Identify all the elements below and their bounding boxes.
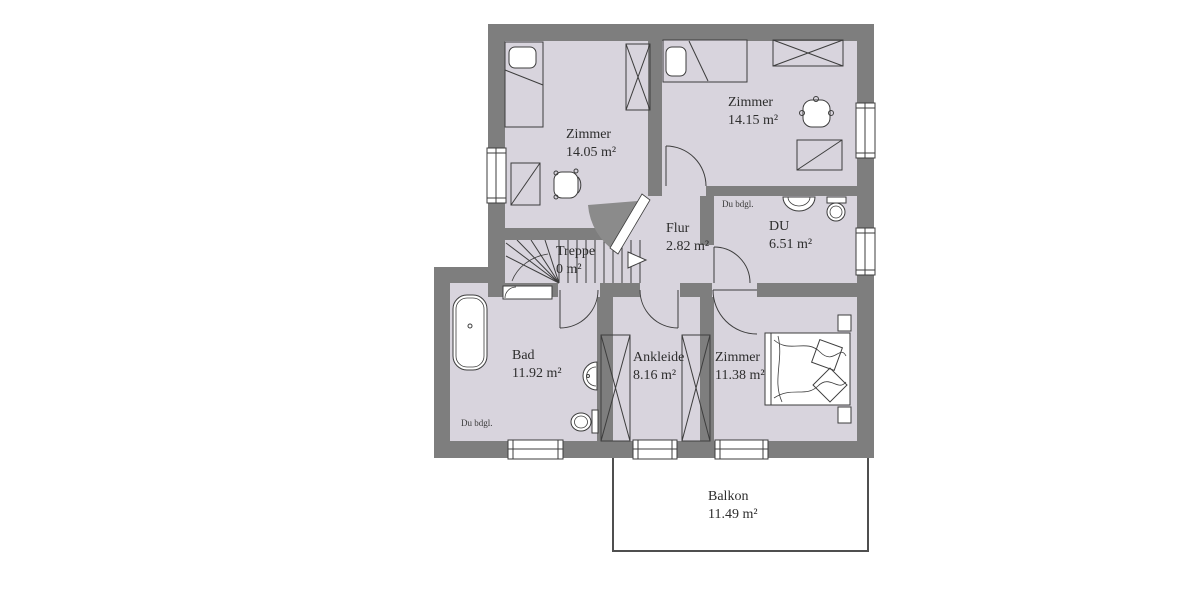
room-name: DU [769,218,812,236]
room-area: 0 m² [556,261,595,279]
bed-single-tl [505,42,543,127]
label-flur: Flur 2.82 m² [666,220,709,256]
wall-under-tl-room [488,228,612,240]
wall-top [488,24,874,41]
label-du: DU 6.51 m² [769,218,812,254]
wall-mid-2 [600,283,640,297]
room-area: 11.38 m² [715,367,765,385]
room-area: 6.51 m² [769,236,812,254]
room-name: Zimmer [728,94,778,112]
wall-under-tr-room-right [706,186,857,196]
window-right-zimmer-tr [856,103,875,158]
room-area: 2.82 m² [666,238,709,256]
wall-under-tr-room-left [648,186,662,196]
label-zimmer-tl: Zimmer 14.05 m² [566,126,616,162]
window-bottom-bad [508,440,563,459]
room-area: 14.15 m² [728,112,778,130]
room-name: Balkon [708,488,758,506]
floorplan-drawing [0,0,1200,600]
room-name: Treppe [556,243,595,261]
label-balkon: Balkon 11.49 m² [708,488,758,524]
label-bad: Bad 11.92 m² [512,347,562,383]
wall-mid-3 [680,283,712,297]
room-name: Zimmer [566,126,616,144]
label-zimmer-br: Zimmer 11.38 m² [715,349,765,385]
window-bottom-ankleide [633,440,677,459]
room-area: 14.05 m² [566,144,616,162]
label-ankleide: Ankleide 8.16 m² [633,349,684,385]
bathtub [453,295,487,370]
pillow [509,47,536,68]
room-name: Bad [512,347,562,365]
nightstand [838,407,851,423]
understair-niche [503,286,552,299]
room-area: 8.16 m² [633,367,684,385]
window-bottom-zimmer-br [715,440,768,459]
label-treppe: Treppe 0 m² [556,243,595,279]
wall-mid-4 [757,283,857,297]
nightstand [838,315,851,331]
wall-ankleide-right [700,297,714,441]
wall-extension-left [434,267,450,458]
note-du-bdgl-bad: Du bdgl. [461,418,493,428]
note-du-bdgl-du: Du bdgl. [722,199,754,209]
bed-single-tr [663,40,747,82]
room-name: Ankleide [633,349,684,367]
room-area: 11.49 m² [708,506,758,524]
room-area: 11.92 m² [512,365,562,383]
label-zimmer-tr: Zimmer 14.15 m² [728,94,778,130]
room-name: Zimmer [715,349,765,367]
toilet-du [827,197,846,221]
floor-plan: Zimmer 14.05 m² Zimmer 14.15 m² Flur 2.8… [0,0,1200,600]
room-name: Flur [666,220,709,238]
bed-double [765,333,850,405]
window-left-zimmer-tl [487,148,506,203]
window-right-du [856,228,875,275]
pillow [666,47,686,76]
